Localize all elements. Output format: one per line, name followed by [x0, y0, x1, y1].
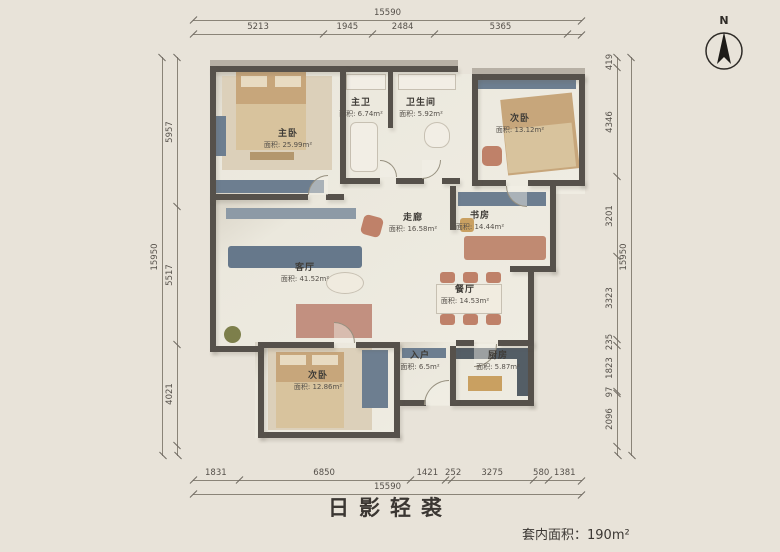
dim-segment: 3323	[605, 256, 618, 339]
dim-label: 1421	[410, 468, 445, 478]
room-name: 客厅	[281, 260, 329, 273]
dim-label: 3275	[451, 468, 533, 478]
room-name: 次卧	[294, 368, 342, 381]
dim-label: 1823	[605, 357, 615, 379]
wall-segment	[210, 194, 308, 200]
wall-segment	[579, 74, 585, 186]
compass-icon	[701, 28, 747, 74]
interior-area-note: 套内面积：190m²	[522, 524, 630, 543]
bed-bench	[250, 152, 294, 160]
background-patch	[534, 266, 585, 350]
wall-segment	[394, 342, 400, 438]
dining-chair	[463, 314, 478, 325]
wall-segment	[326, 194, 344, 200]
dim-segment: 15590	[193, 8, 582, 21]
wall-segment	[528, 272, 534, 406]
dim-segment: 1823	[605, 345, 618, 391]
wall-segment	[528, 180, 585, 186]
room-area: 面积: 13.12m²	[496, 125, 544, 135]
dim-segment: 580	[533, 468, 547, 481]
room-label-bedroom-3: 次卧面积: 12.86m²	[294, 368, 342, 392]
dim-segment: 1421	[410, 468, 445, 481]
room-label-corridor: 走廊面积: 16.58m²	[389, 210, 437, 234]
dim-segment: 1831	[193, 468, 239, 481]
room-name: 走廊	[389, 210, 437, 223]
area-note-value: 190m²	[587, 528, 630, 543]
dim-segment: 5517	[165, 206, 178, 344]
coffee-table	[326, 272, 364, 294]
room-area: 面积: 41.52m²	[281, 274, 329, 284]
dim-label: 5957	[165, 121, 175, 143]
room-name: 卫生间	[399, 95, 443, 108]
wall-segment	[456, 340, 474, 346]
dim-segment: 1381	[548, 468, 582, 481]
wall-segment	[340, 178, 380, 184]
kitchen-island	[468, 376, 502, 391]
wall-segment	[450, 400, 534, 406]
dim-label: 1945	[323, 22, 372, 32]
dim-segment	[567, 22, 582, 35]
dim-left-total: 15950	[150, 57, 163, 456]
plan-title: 日影轻裘	[0, 492, 780, 522]
dim-bottom-segments: 1831 6850 1421 252 3275 580 1381	[193, 468, 582, 481]
dining-chair	[440, 314, 455, 325]
dim-label: 5365	[434, 22, 568, 32]
wall-segment	[472, 74, 478, 186]
dim-right-segments: 419 4346 3201 3323 235 1823 97 2096	[605, 57, 618, 456]
dining-chair	[486, 314, 501, 325]
room-name: 次卧	[496, 111, 544, 124]
floor-plan: 主卧面积: 25.99m² 主卫面积: 6.74m² 卫生间面积: 5.92m²…	[210, 60, 585, 442]
room-area: 面积: 14.44m²	[456, 222, 504, 232]
wall-segment	[450, 346, 456, 400]
dim-label: 5213	[193, 22, 323, 32]
dim-segment: 3275	[451, 468, 533, 481]
room-label-kitchen: 厨房面积: 5.87m²	[476, 348, 520, 372]
dim-label: 1381	[548, 468, 582, 478]
wardrobe	[362, 350, 388, 408]
room-name: 主卫	[339, 95, 383, 108]
pillow	[312, 355, 338, 365]
dim-segment: 4021	[165, 344, 178, 445]
dim-segment: 5213	[193, 22, 323, 35]
north-indicator: N	[700, 14, 748, 78]
area-note-label: 套内面积：	[522, 528, 587, 543]
sink-counter	[398, 74, 456, 90]
dim-right-total: 15950	[619, 57, 632, 456]
dim-segment: 3201	[605, 176, 618, 256]
dim-label: 6850	[239, 468, 410, 478]
wall-segment	[258, 342, 334, 348]
room-area: 面积: 5.92m²	[399, 109, 443, 119]
room-area: 面积: 16.58m²	[389, 224, 437, 234]
dresser	[216, 116, 226, 156]
room-name: 厨房	[476, 348, 520, 361]
room-area: 面积: 5.87m²	[476, 362, 520, 372]
wall-segment	[356, 342, 400, 348]
bookshelf	[458, 192, 546, 206]
room-name: 餐厅	[441, 282, 489, 295]
room-name: 书房	[456, 208, 504, 221]
room-label-bathroom: 卫生间面积: 5.92m²	[399, 95, 443, 119]
room-label-study: 书房面积: 14.44m²	[456, 208, 504, 232]
dim-segment: 5365	[434, 22, 568, 35]
dim-label: 4021	[165, 383, 175, 405]
background-patch	[458, 60, 585, 68]
dim-segment: 2096	[605, 393, 618, 445]
wall-segment	[396, 178, 424, 184]
dim-segment: 15950	[619, 57, 632, 456]
plant	[224, 326, 241, 343]
wall-segment	[258, 342, 264, 438]
wall-segment	[550, 186, 556, 272]
dim-segment: 6850	[239, 468, 410, 481]
wall-segment	[340, 66, 346, 184]
room-label-living-room: 客厅面积: 41.52m²	[281, 260, 329, 284]
wall-segment	[472, 74, 585, 80]
dim-label: 15590	[193, 482, 582, 492]
dim-label: 580	[533, 468, 547, 478]
dim-label: 2096	[605, 409, 615, 431]
floorplan-sheet: 15590 5213 1945 2484 5365 1831 6850 1421…	[0, 0, 780, 552]
dim-label: 15950	[150, 243, 160, 270]
dim-segment: 4346	[605, 67, 618, 176]
dim-left-segments: 5957 5517 4021	[165, 57, 178, 456]
room-label-master-bath: 主卫面积: 6.74m²	[339, 95, 383, 119]
pillow	[241, 76, 267, 87]
room-label-master-bedroom: 主卧面积: 25.99m²	[264, 126, 312, 150]
wall-segment	[498, 340, 534, 346]
dim-top-total: 15590	[193, 8, 582, 21]
dim-segment	[165, 445, 178, 456]
room-area: 面积: 6.5m²	[400, 362, 439, 372]
north-label: N	[700, 14, 748, 27]
dim-top-segments: 5213 1945 2484 5365	[193, 22, 582, 35]
room-label-entry: 入户面积: 6.5m²	[400, 348, 439, 372]
dim-segment: 5957	[165, 57, 178, 206]
dim-segment: 15950	[150, 57, 163, 456]
dim-segment: 1945	[323, 22, 372, 35]
wall-segment	[210, 346, 264, 352]
dim-label: 4346	[605, 111, 615, 133]
wall-segment	[210, 66, 458, 72]
room-area: 面积: 6.74m²	[339, 109, 383, 119]
wall-segment	[388, 72, 393, 128]
dim-label: 15590	[193, 8, 582, 18]
wall-segment	[258, 432, 400, 438]
room-label-dining-room: 餐厅面积: 14.53m²	[441, 282, 489, 306]
room-area: 面积: 12.86m²	[294, 382, 342, 392]
dim-label: 3323	[605, 287, 615, 309]
dim-label: 5517	[165, 264, 175, 286]
dim-segment	[605, 446, 618, 456]
dim-label: 1831	[193, 468, 239, 478]
room-name: 主卧	[264, 126, 312, 139]
room-area: 面积: 25.99m²	[264, 140, 312, 150]
wall-segment	[442, 178, 460, 184]
bathtub	[350, 122, 378, 172]
dim-label: 2484	[372, 22, 434, 32]
room-label-bedroom-2: 次卧面积: 13.12m²	[496, 111, 544, 135]
room-area: 面积: 14.53m²	[441, 296, 489, 306]
armchair	[482, 146, 502, 166]
dim-label: 3201	[605, 205, 615, 227]
background-patch	[458, 68, 472, 74]
vanity	[346, 74, 386, 90]
dim-segment: 2484	[372, 22, 434, 35]
dim-label: 15950	[619, 243, 629, 270]
room-name: 入户	[400, 348, 439, 361]
toilet	[424, 122, 450, 148]
wall-segment	[400, 400, 426, 406]
study-sofa	[464, 236, 546, 260]
pillow	[275, 76, 301, 87]
pillow	[280, 355, 306, 365]
wall-segment	[210, 66, 216, 352]
tv-console	[226, 208, 356, 219]
